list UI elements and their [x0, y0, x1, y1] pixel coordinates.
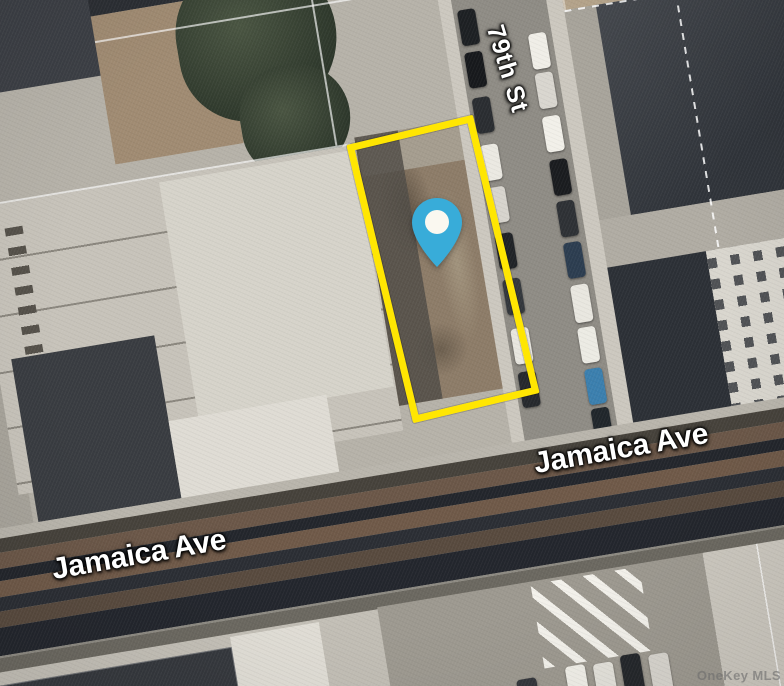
rooftop — [11, 335, 181, 522]
satellite-map-canvas[interactable]: 79th St Jamaica Ave Jamaica Ave OneKey M… — [0, 0, 784, 686]
location-pin-icon[interactable] — [410, 196, 464, 268]
onekey-mls-watermark: OneKey MLS — [697, 668, 781, 683]
aerial-imagery-layer — [0, 0, 784, 686]
pin-center-dot — [425, 210, 449, 234]
